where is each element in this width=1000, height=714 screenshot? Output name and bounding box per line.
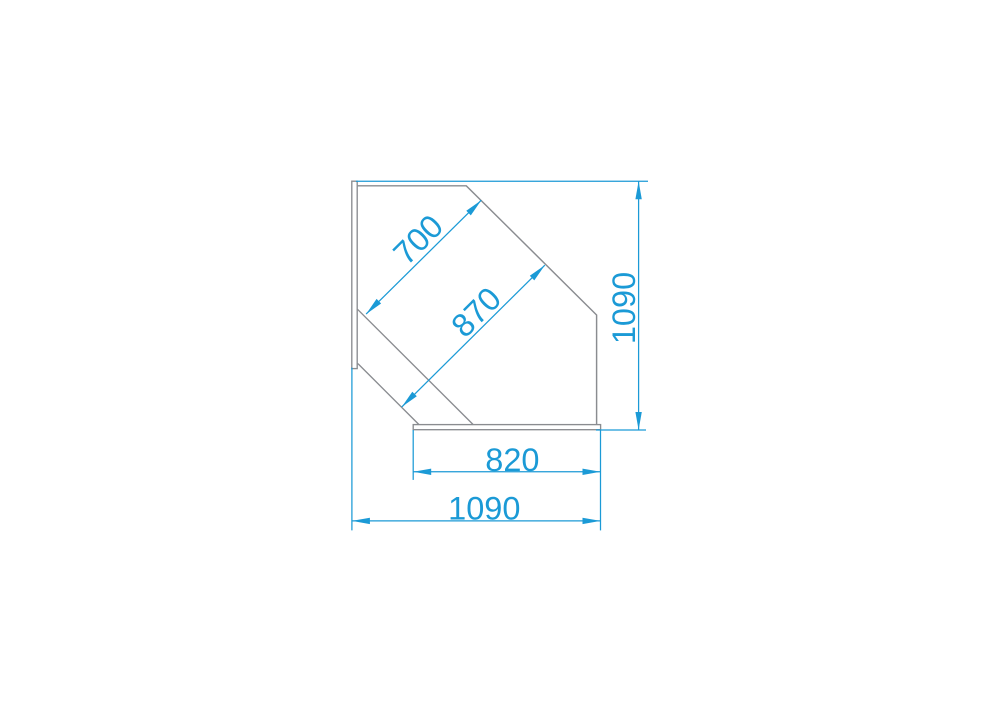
svg-text:870: 870 [444,280,508,344]
svg-text:1090: 1090 [448,491,520,527]
svg-text:700: 700 [386,208,450,272]
svg-text:820: 820 [485,442,539,478]
svg-text:1090: 1090 [606,272,642,344]
